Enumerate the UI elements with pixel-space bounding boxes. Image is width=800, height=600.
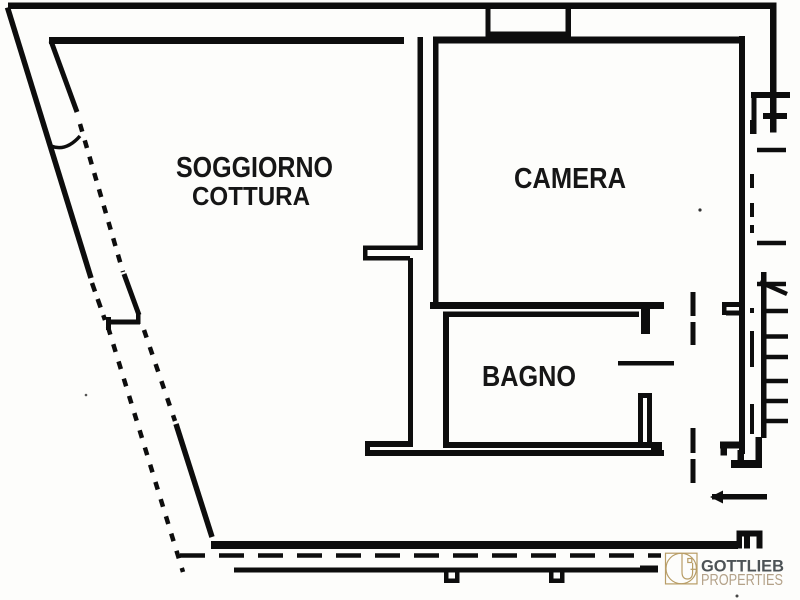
svg-text:PROPERTIES: PROPERTIES [701, 572, 783, 589]
svg-text:CAMERA: CAMERA [514, 163, 626, 195]
svg-text:COTTURA: COTTURA [192, 181, 310, 211]
svg-text:BAGNO: BAGNO [482, 361, 576, 393]
svg-text:SOGGIORNO: SOGGIORNO [176, 152, 333, 184]
